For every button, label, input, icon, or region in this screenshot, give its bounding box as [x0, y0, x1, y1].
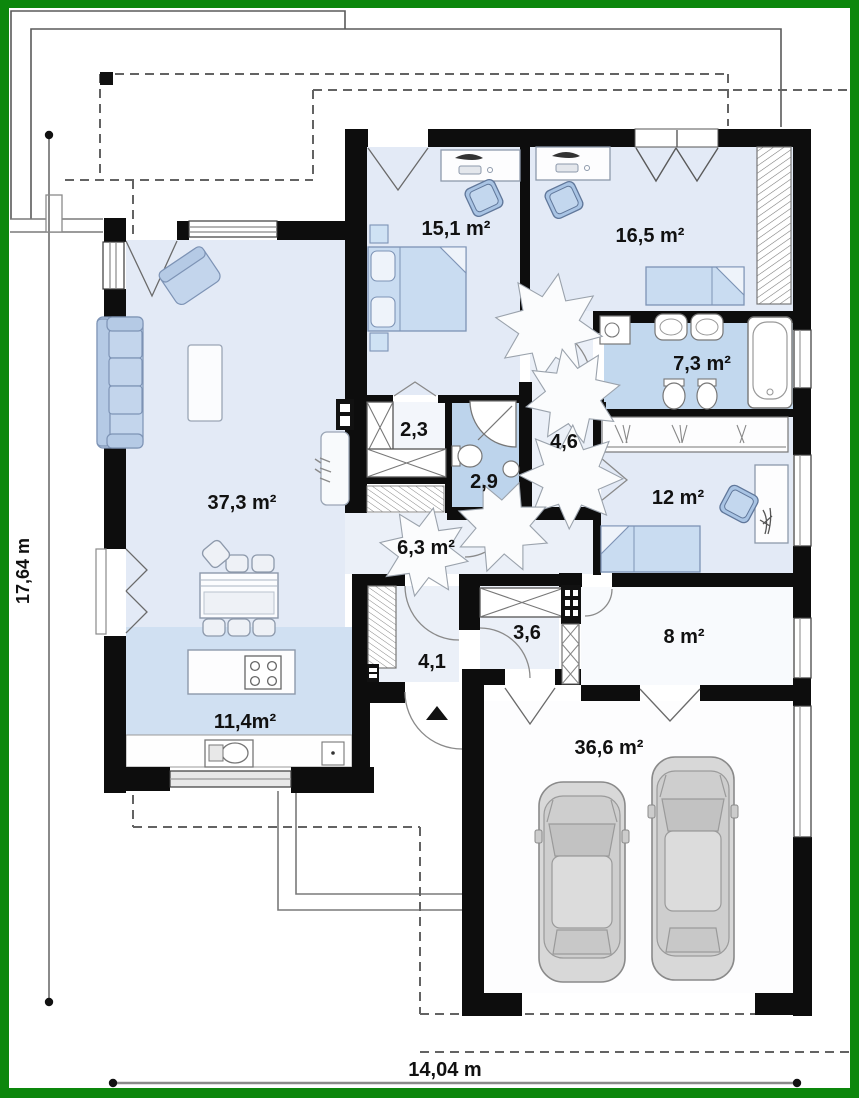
- svg-text:4,6: 4,6: [550, 431, 578, 453]
- svg-text:14,04 m: 14,04 m: [408, 1059, 481, 1081]
- svg-text:6,3 m²: 6,3 m²: [397, 537, 455, 559]
- svg-text:2,3: 2,3: [400, 419, 428, 441]
- svg-text:12 m²: 12 m²: [652, 487, 705, 509]
- svg-text:3,6: 3,6: [513, 622, 541, 644]
- svg-text:17,64 m: 17,64 m: [13, 538, 33, 604]
- svg-text:16,5 m²: 16,5 m²: [616, 225, 685, 247]
- svg-text:8 m²: 8 m²: [663, 626, 704, 648]
- svg-text:11,4m²: 11,4m²: [214, 711, 277, 733]
- svg-text:4,1: 4,1: [418, 651, 446, 673]
- svg-text:15,1 m²: 15,1 m²: [422, 218, 491, 240]
- svg-text:2,9: 2,9: [470, 471, 498, 493]
- svg-text:7,3 m²: 7,3 m²: [673, 353, 731, 375]
- svg-text:36,6 m²: 36,6 m²: [575, 737, 644, 759]
- svg-text:37,3 m²: 37,3 m²: [208, 492, 277, 514]
